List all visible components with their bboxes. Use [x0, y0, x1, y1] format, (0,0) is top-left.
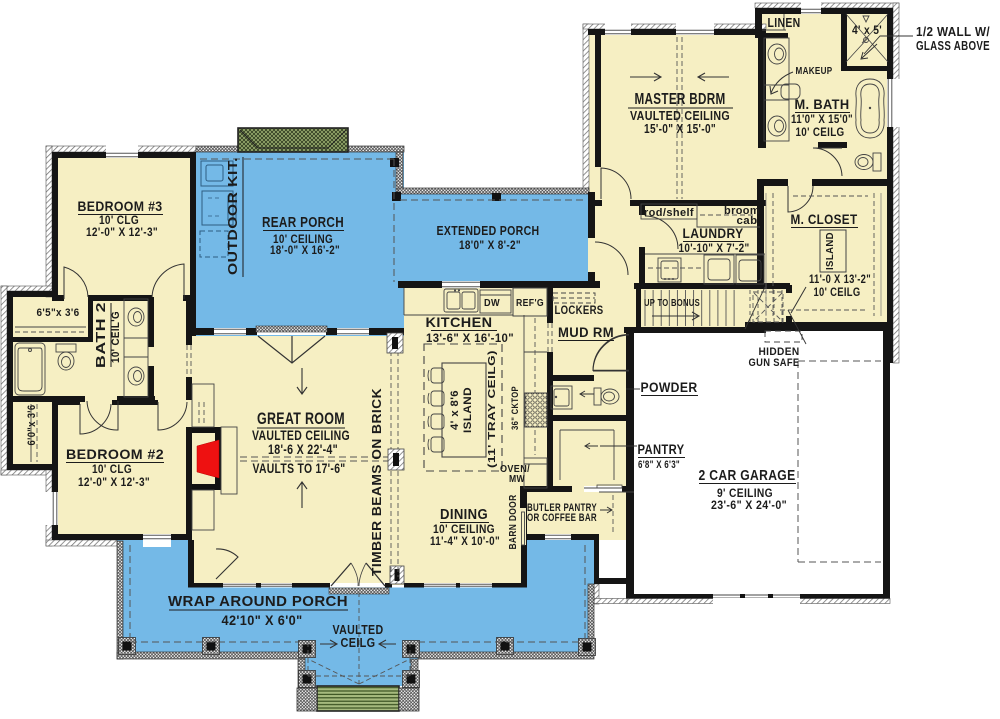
svg-text:6'5"x 3'6: 6'5"x 3'6 — [37, 307, 80, 319]
svg-text:10' CEIL'G: 10' CEIL'G — [110, 311, 122, 363]
svg-text:10' CLG: 10' CLG — [92, 462, 132, 476]
svg-text:4' x 5': 4' x 5' — [852, 23, 882, 37]
svg-text:GREAT ROOM: GREAT ROOM — [257, 410, 345, 428]
svg-text:WRAP AROUND PORCH: WRAP AROUND PORCH — [168, 594, 348, 610]
svg-text:MW: MW — [509, 474, 525, 485]
svg-text:DW: DW — [484, 298, 500, 309]
svg-text:12'-0" X 12'-3": 12'-0" X 12'-3" — [78, 475, 150, 489]
svg-text:ISLAND: ISLAND — [462, 387, 474, 433]
svg-text:TIMBER BEAMS ON BRICK: TIMBER BEAMS ON BRICK — [370, 388, 384, 576]
svg-text:VAULTS TO 17'-6": VAULTS TO 17'-6" — [253, 461, 346, 476]
svg-text:6'8" X 6'3": 6'8" X 6'3" — [638, 459, 680, 471]
svg-text:15'-0" X 15'-0": 15'-0" X 15'-0" — [644, 121, 716, 136]
svg-text:EXTENDED PORCH: EXTENDED PORCH — [437, 223, 540, 238]
svg-text:1/2 WALL W/: 1/2 WALL W/ — [916, 25, 990, 39]
svg-text:36" CKTOP: 36" CKTOP — [510, 386, 520, 430]
svg-text:18'-6 X 22'-4": 18'-6 X 22'-4" — [268, 442, 338, 457]
svg-text:42'10" X 6'0": 42'10" X 6'0" — [222, 613, 303, 628]
svg-text:DINING: DINING — [440, 507, 488, 523]
svg-text:LOCKERS: LOCKERS — [555, 303, 604, 317]
svg-text:UP TO BONUS: UP TO BONUS — [644, 298, 700, 309]
svg-text:2 CAR GARAGE: 2 CAR GARAGE — [699, 468, 796, 484]
svg-text:M. BATH: M. BATH — [795, 97, 850, 113]
svg-text:rod/shelf: rod/shelf — [644, 207, 694, 219]
svg-text:cab: cab — [737, 215, 758, 227]
svg-text:MASTER BDRM: MASTER BDRM — [635, 91, 726, 108]
svg-text:23'-6" X 24'-0": 23'-6" X 24'-0" — [711, 498, 787, 512]
svg-text:GUN SAFE: GUN SAFE — [749, 357, 800, 369]
svg-text:18'0" X 8'-2": 18'0" X 8'-2" — [459, 238, 521, 252]
svg-text:11'0" X 15'0": 11'0" X 15'0" — [791, 112, 853, 126]
svg-text:KITCHEN: KITCHEN — [426, 315, 493, 331]
svg-text:11'-4" X 10'-0": 11'-4" X 10'-0" — [430, 534, 500, 548]
svg-text:VAULTED: VAULTED — [333, 623, 384, 637]
svg-text:POWDER: POWDER — [641, 380, 698, 395]
svg-text:(11' TRAY CEILG): (11' TRAY CEILG) — [487, 350, 498, 468]
svg-text:REF'G: REF'G — [516, 298, 544, 309]
svg-text:10'-10" X 7'-2": 10'-10" X 7'-2" — [679, 241, 750, 255]
svg-text:CEILG: CEILG — [341, 636, 376, 650]
svg-text:MUD RM: MUD RM — [558, 325, 614, 340]
svg-text:PANTRY: PANTRY — [638, 442, 685, 457]
svg-text:VAULTED CEILING: VAULTED CEILING — [252, 428, 350, 443]
svg-text:GLASS ABOVE: GLASS ABOVE — [916, 39, 990, 53]
svg-text:M. CLOSET: M. CLOSET — [791, 212, 858, 227]
svg-text:OUTDOOR KIT.: OUTDOOR KIT. — [226, 157, 240, 275]
svg-text:10' CEILG: 10' CEILG — [814, 285, 861, 299]
svg-text:BEDROOM #2: BEDROOM #2 — [66, 447, 164, 463]
svg-text:ISLAND: ISLAND — [825, 232, 836, 270]
svg-text:11'-0 X 13'-2": 11'-0 X 13'-2" — [809, 272, 871, 286]
svg-text:LINEN: LINEN — [768, 16, 801, 30]
svg-text:4' x 8'6: 4' x 8'6 — [449, 390, 461, 430]
svg-text:18'-0" X 16'-2": 18'-0" X 16'-2" — [270, 243, 340, 257]
svg-text:13'-6" X 16'-10": 13'-6" X 16'-10" — [426, 331, 514, 345]
svg-text:REAR PORCH: REAR PORCH — [262, 215, 344, 231]
svg-text:LAUNDRY: LAUNDRY — [683, 226, 744, 241]
svg-text:10' CEILG: 10' CEILG — [796, 125, 845, 139]
svg-text:BATH 2: BATH 2 — [94, 302, 108, 368]
svg-text:12'-0" X 12'-3": 12'-0" X 12'-3" — [86, 225, 158, 239]
svg-text:MAKEUP: MAKEUP — [796, 66, 833, 77]
svg-text:OR COFFEE BAR: OR COFFEE BAR — [527, 512, 597, 524]
svg-text:BARN DOOR: BARN DOOR — [508, 494, 519, 549]
svg-text:6'0"x 3'6: 6'0"x 3'6 — [26, 405, 38, 446]
